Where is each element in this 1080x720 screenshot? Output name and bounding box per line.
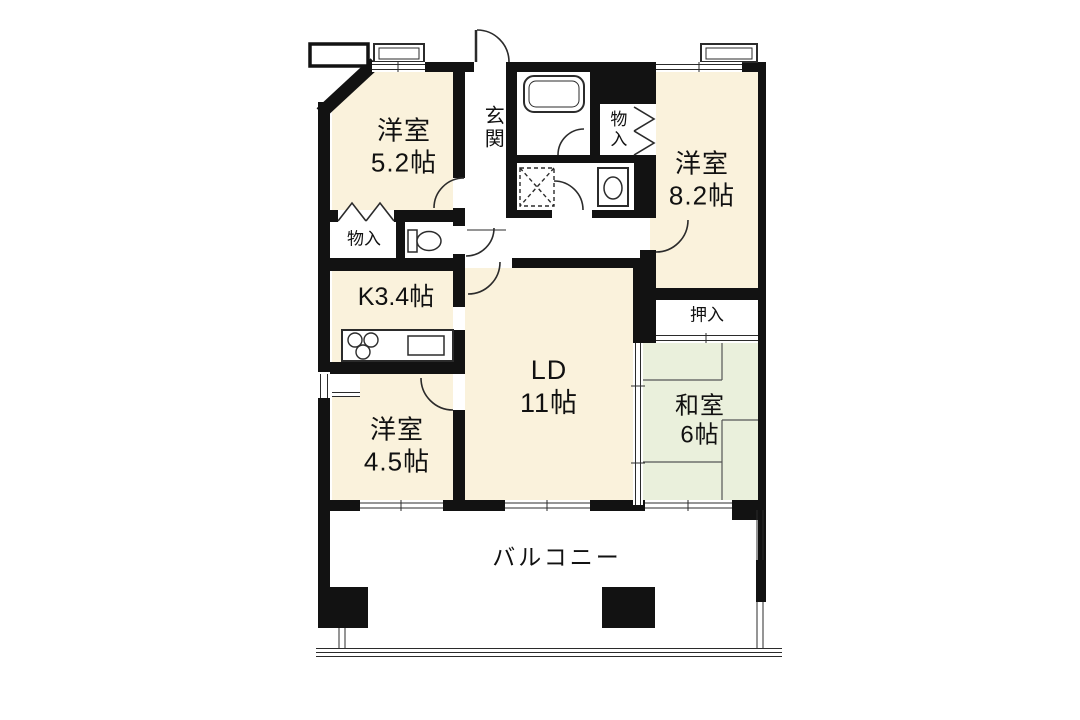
door-toilet: [466, 228, 494, 256]
balcony-pillar-left: [318, 587, 368, 628]
label-kitchen: K3.4帖: [358, 282, 434, 313]
balcony-pillar-middle: [602, 587, 655, 628]
floor-plan-page: 洋室5.2帖 洋室8.2帖 K3.4帖 LD11帖 洋室4.5帖 和室6帖 バル…: [0, 0, 1080, 720]
label-entrance: 玄関: [480, 105, 504, 151]
balcony-railing: [316, 510, 782, 657]
kitchen-counter-symbol: [342, 330, 453, 361]
label-closet-oshiire: 押入: [690, 306, 724, 327]
label-storage-left: 物入: [347, 230, 381, 251]
washing-machine-pan-symbol: [520, 168, 554, 206]
label-balcony: バルコニー: [492, 543, 622, 571]
label-storage-top-right: 物入: [606, 110, 627, 150]
balcony-sliding-door-japanese-room: [645, 500, 732, 511]
kitchen-sink-icon: [408, 336, 444, 355]
label-bedroom-8-2: 洋室8.2帖: [669, 148, 735, 211]
fusuma-closet-door: [656, 333, 758, 343]
door-washroom: [554, 181, 583, 210]
sliding-partition-ld-japanese: [631, 343, 645, 505]
window-bedroom-5-2: [372, 62, 425, 72]
label-living-dining: LD11帖: [520, 354, 578, 420]
window-bedroom-8-2: [656, 62, 742, 72]
washbasin-symbol: [598, 168, 628, 206]
toilet-symbol: [408, 230, 441, 252]
label-japanese-room: 和室6帖: [675, 392, 725, 451]
label-bedroom-4-5: 洋室4.5帖: [364, 414, 430, 477]
bathtub-symbol: [524, 76, 584, 112]
balcony-sliding-door-bedroom-4-5: [360, 500, 443, 511]
balcony-sliding-door-living: [505, 500, 590, 511]
label-bedroom-5-2: 洋室5.2帖: [371, 115, 437, 178]
door-bathroom: [558, 129, 584, 155]
meter-box: [310, 44, 368, 66]
entrance-door-swing: [477, 30, 509, 62]
